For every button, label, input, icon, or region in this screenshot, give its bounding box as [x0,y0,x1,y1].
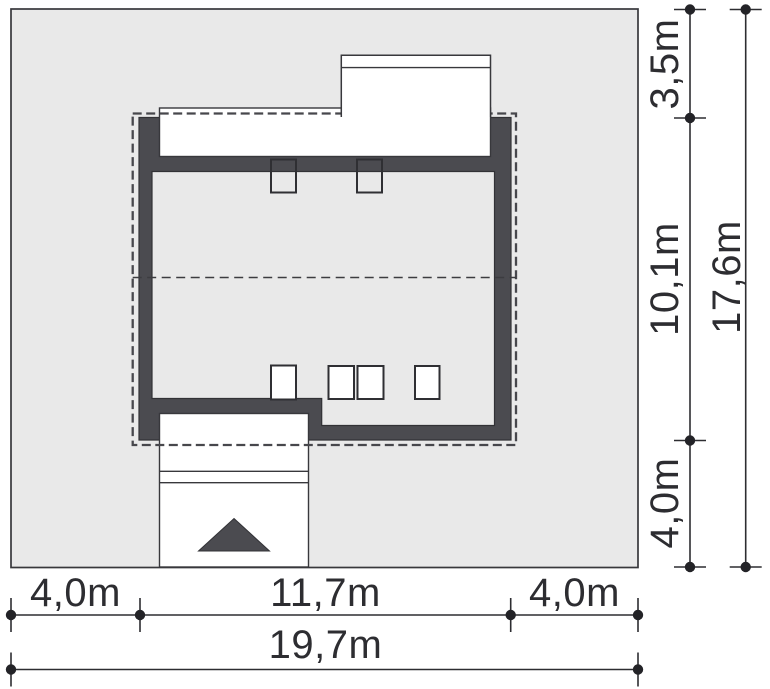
dimension-label-right-mid: 10,1m [643,222,687,336]
dimension-dot [741,4,751,14]
skylight [358,366,384,399]
dimension-label-bottom-left: 4,0m [30,571,121,615]
dimension-label-right-total: 17,6m [705,220,749,334]
annex-extension [341,55,490,117]
dimension-label-right-top: 3,5m [643,19,687,110]
dimension-right: 3,5m 10,1m 4,0m 17,6m [643,4,762,572]
dimension-dot [6,664,16,674]
dimension-dot [685,113,695,123]
dimension-label-bottom-total: 19,7m [269,623,383,667]
skylight [271,366,296,400]
plan-canvas: 3,5m 10,1m 4,0m 17,6m 4,0m 11,7m 4,0m 19… [0,0,770,689]
dimension-dot [685,4,695,14]
dimension-dot [633,610,643,620]
dimension-dot [6,610,16,620]
dimension-dot [506,610,516,620]
plot-boundary [11,9,638,568]
dimension-dot [685,435,695,445]
site-plan-drawing: 3,5m 10,1m 4,0m 17,6m 4,0m 11,7m 4,0m 19… [0,0,770,689]
dimension-dot [741,562,751,572]
dimension-dot [135,610,145,620]
dimension-label-bottom-right: 4,0m [529,571,620,615]
skylight [329,366,355,399]
skylight [415,366,440,399]
dimension-label-right-bottom: 4,0m [643,458,687,549]
dimension-bottom: 4,0m 11,7m 4,0m 19,7m [6,571,643,687]
dimension-label-bottom-mid: 11,7m [270,571,381,615]
dimension-dot [633,664,643,674]
dimension-dot [685,562,695,572]
